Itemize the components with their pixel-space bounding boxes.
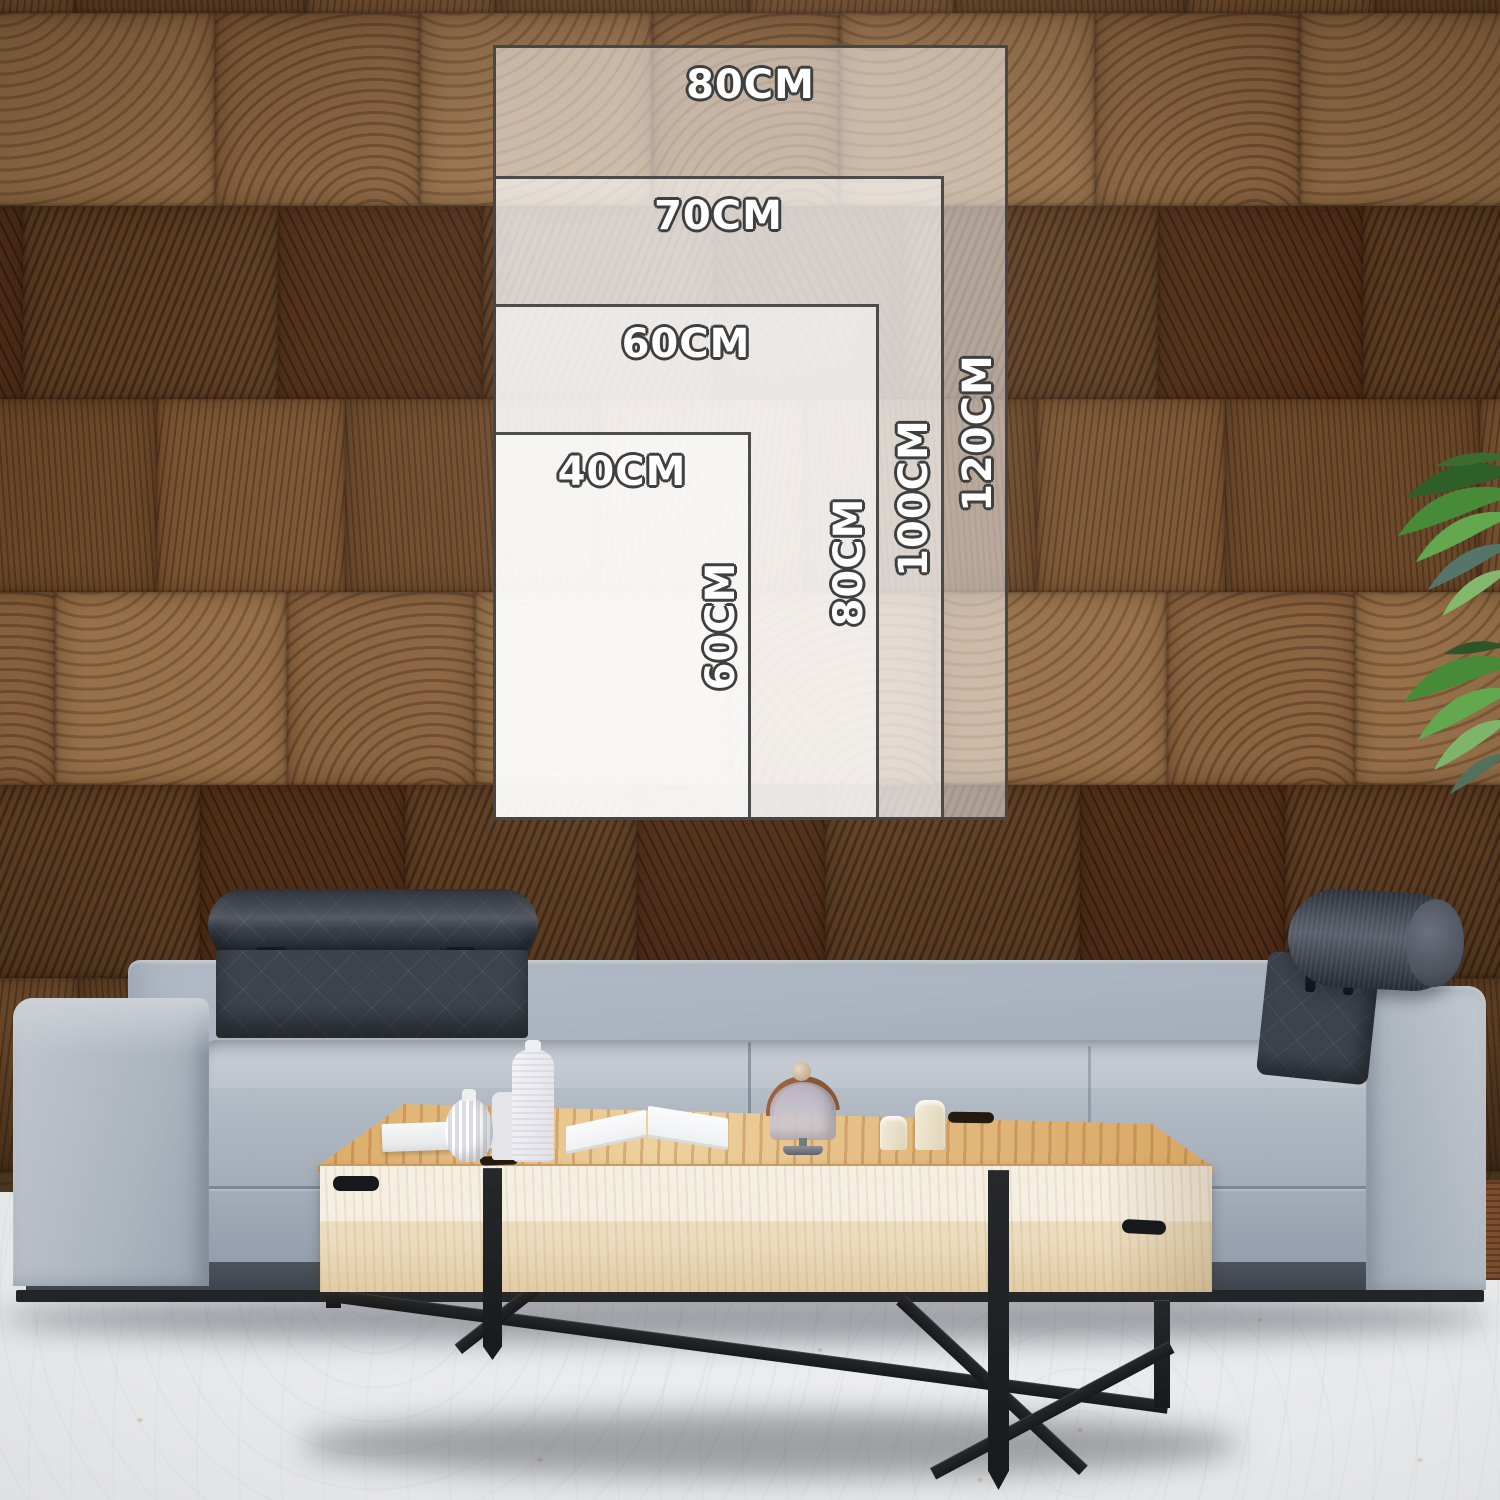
tall-vase <box>512 1050 554 1162</box>
gourd-vase <box>445 1098 493 1162</box>
sofa-headrest-panel <box>216 950 528 1038</box>
candle-short <box>880 1116 907 1150</box>
wood-tile <box>955 0 1187 13</box>
wood-tile <box>0 0 75 13</box>
cloche-knob <box>792 1062 811 1081</box>
wood-tile <box>1167 592 1355 785</box>
wood-tile <box>750 0 955 13</box>
wood-tile <box>287 592 475 785</box>
size-rect-40x60: 40CM 60CM <box>493 432 751 820</box>
wood-tile <box>0 785 200 978</box>
size-height-label: 80CM <box>826 498 872 627</box>
wood-tile <box>157 399 345 592</box>
wood-tile <box>0 592 55 785</box>
size-width-label: 60CM <box>496 321 876 367</box>
wood-tile <box>495 0 750 13</box>
wood-tile <box>0 399 157 592</box>
wood-tile <box>0 206 23 399</box>
plant-leaves-icon <box>1392 448 1500 813</box>
table-post-right <box>988 1170 1009 1490</box>
table-front-face <box>320 1164 1212 1292</box>
wood-tile <box>75 0 307 13</box>
sofa-bolster-headrest <box>1286 887 1465 994</box>
product-size-guide-image: 80CM 120CM 70CM 100CM 60CM 80CM 40CM 60C… <box>0 0 1500 1500</box>
sofa-armrest-left <box>13 998 209 1286</box>
wood-tile <box>23 206 278 399</box>
table-post-left <box>483 1168 502 1360</box>
wood-tile <box>1187 0 1375 13</box>
table-handle-slot <box>1122 1219 1167 1235</box>
wood-tile <box>1095 13 1300 206</box>
size-width-label: 70CM <box>496 193 941 239</box>
wood-tile <box>0 13 215 206</box>
wood-tile <box>1300 13 1500 206</box>
wood-tile <box>1375 0 1500 13</box>
table-floor-shadow <box>300 1412 1240 1478</box>
cloche-foot <box>783 1146 823 1155</box>
wood-tile <box>307 0 495 13</box>
size-height-label: 100CM <box>891 419 937 577</box>
wood-tile <box>1363 206 1500 399</box>
cloche-dome <box>770 1082 836 1140</box>
wood-tile <box>1158 206 1363 399</box>
sofa-armrest-right <box>1366 986 1486 1290</box>
size-width-label: 80CM <box>496 62 1005 108</box>
wood-tile <box>215 13 420 206</box>
candle-tall <box>915 1100 945 1150</box>
size-height-label: 120CM <box>955 354 1001 512</box>
wood-tile <box>55 592 287 785</box>
wood-tile <box>1080 785 1285 978</box>
size-height-label: 60CM <box>698 562 744 691</box>
wood-tile <box>1037 399 1225 592</box>
wood-tile <box>278 206 483 399</box>
size-width-label: 40CM <box>496 449 748 495</box>
table-top-slot <box>948 1112 994 1124</box>
table-handle-slot <box>333 1176 379 1191</box>
